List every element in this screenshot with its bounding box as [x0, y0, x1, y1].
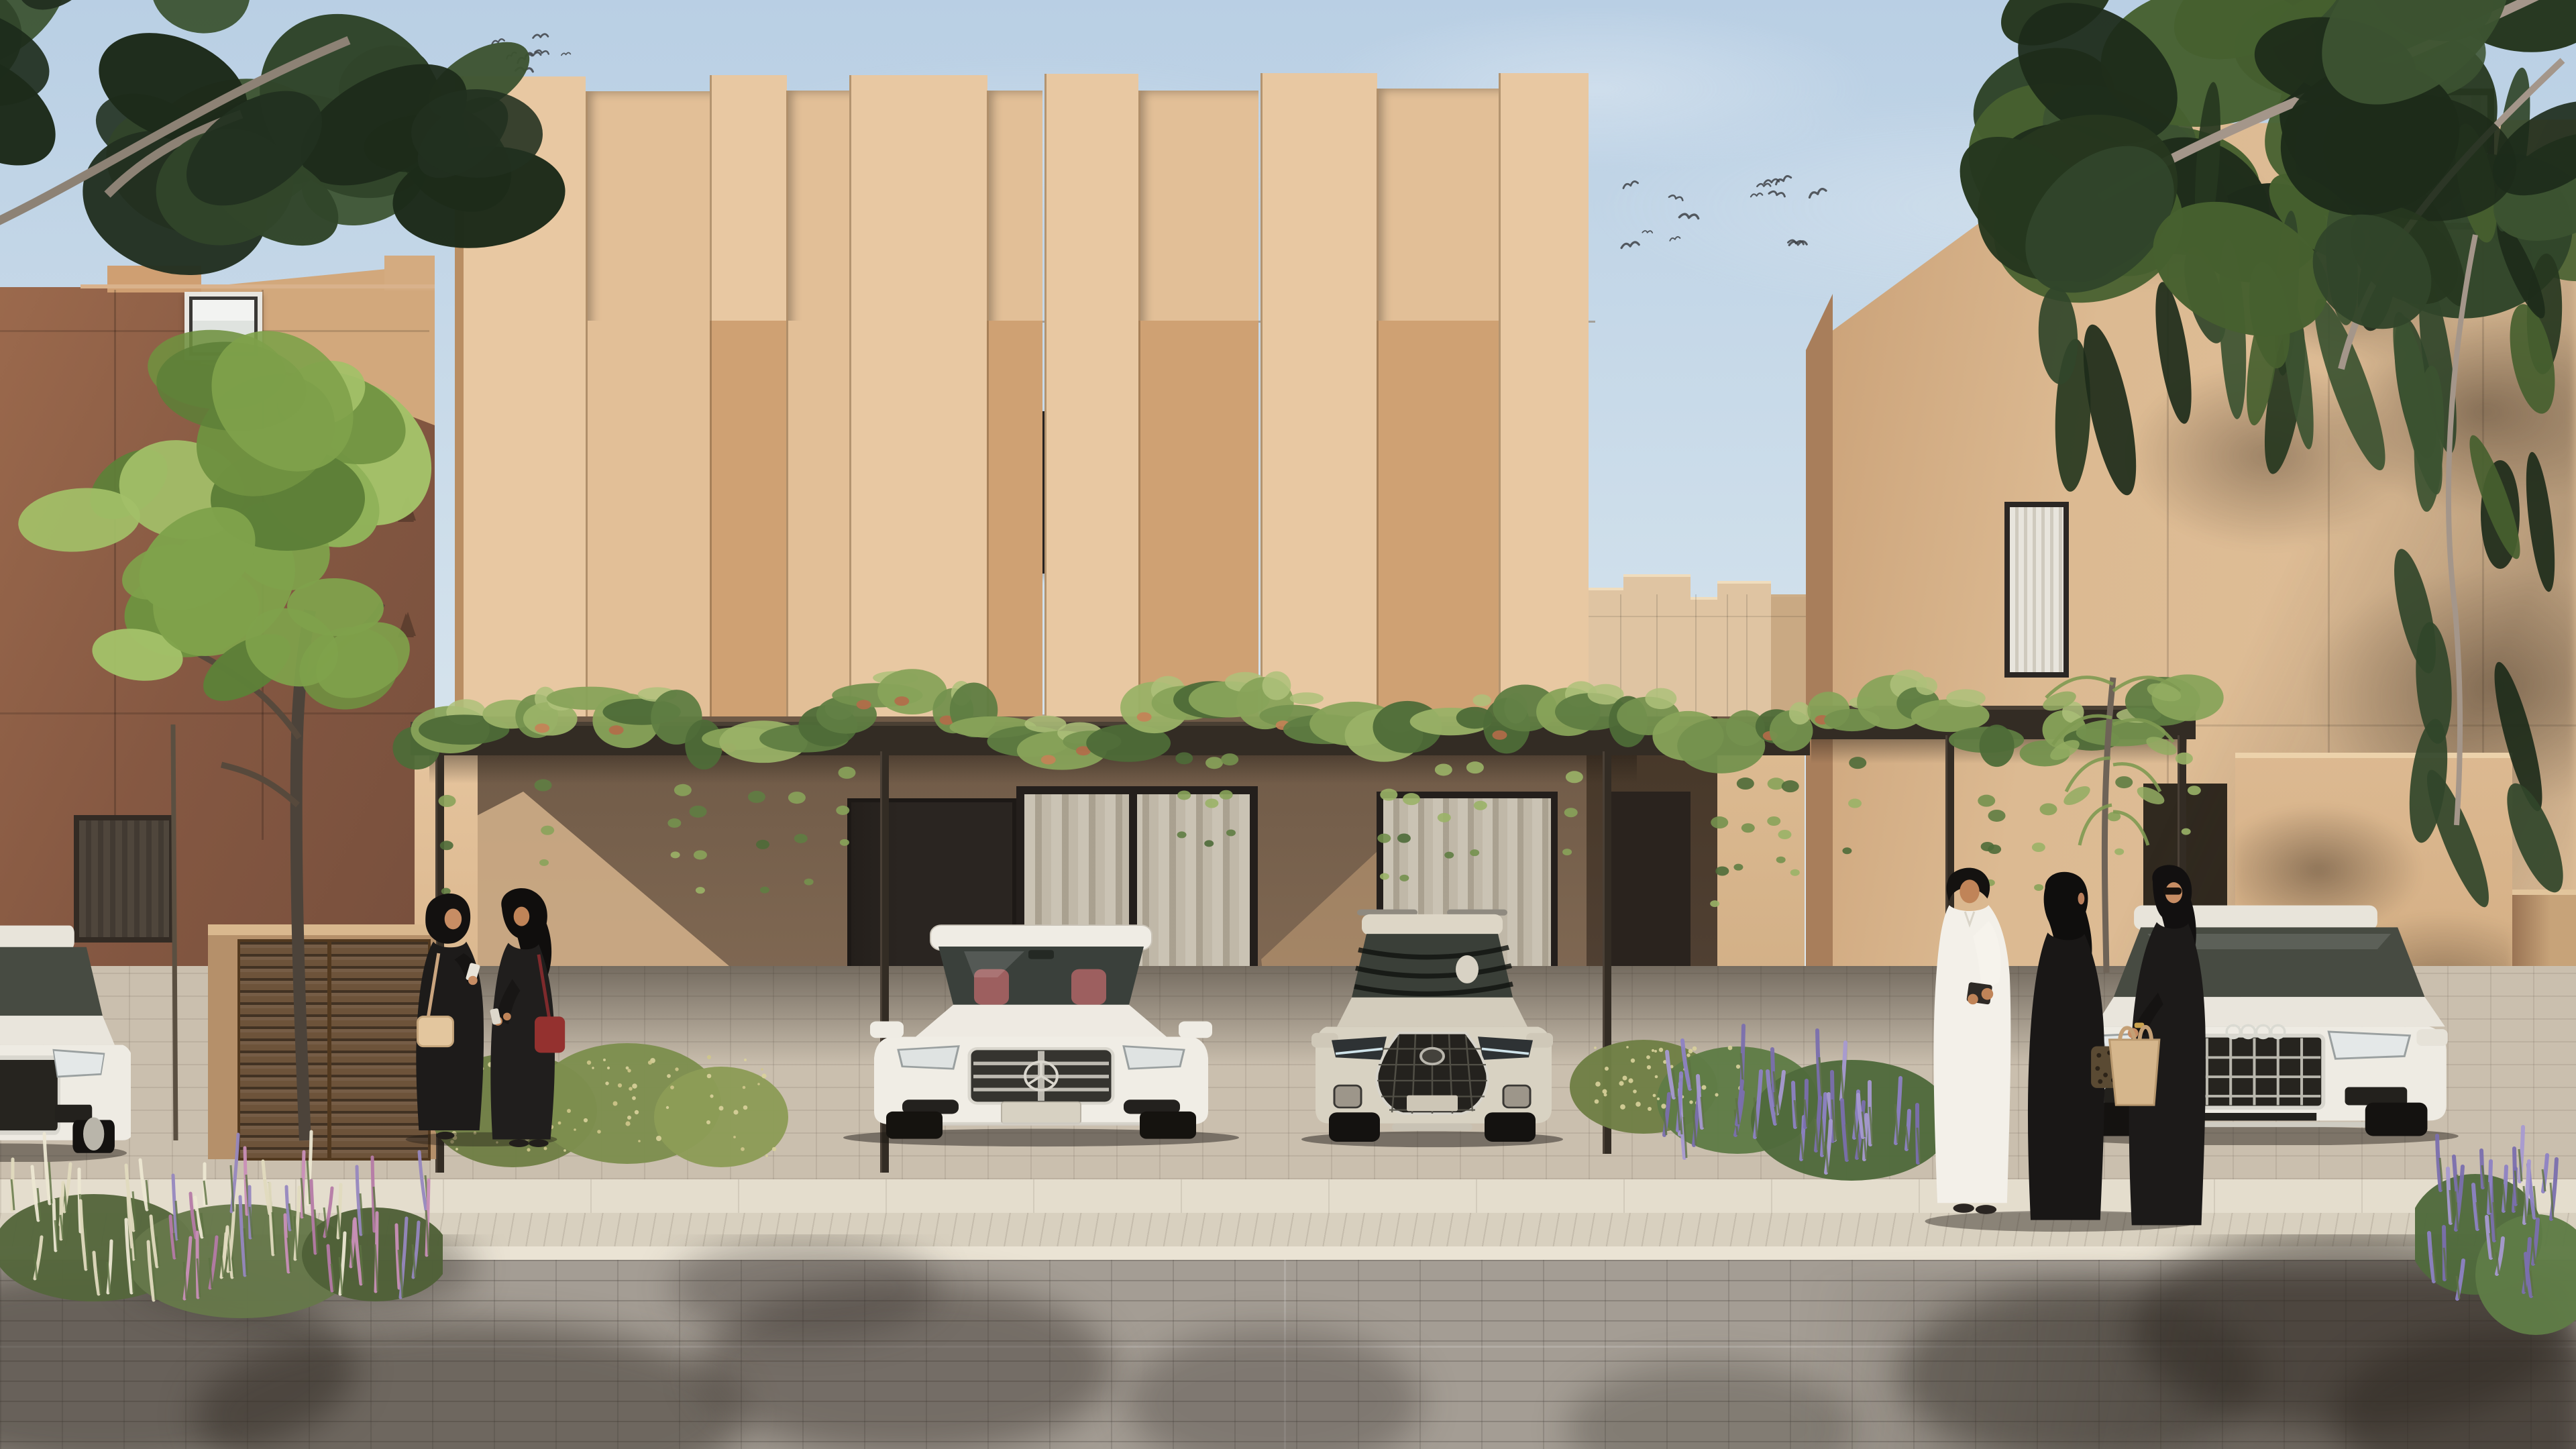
vine-hanging-strand [838, 767, 855, 779]
facade-panel-upper [1377, 89, 1499, 321]
flower-speckle [635, 1110, 639, 1114]
facade-panel-upper [849, 75, 987, 321]
vine-hanging-strand [1474, 801, 1487, 810]
car-headlight-left [898, 1046, 959, 1069]
vine-hanging-strand [1782, 780, 1799, 792]
flower-speckle [733, 1136, 736, 1138]
facade-panel-upper [786, 91, 850, 321]
vine-hanging-strand [674, 784, 692, 796]
car-wheel-right [1140, 1112, 1196, 1139]
facade-panel-upper [586, 91, 710, 321]
flower-speckle [1715, 1093, 1718, 1096]
vine-hanging-strand [696, 887, 705, 894]
leaf-mass [241, 0, 401, 13]
flower-speckle [757, 1083, 760, 1085]
tree-shadow-dapple [671, 1238, 939, 1338]
bed-left-flowering [0, 1100, 443, 1342]
vine-hanging-strand [1562, 849, 1572, 855]
vine-accent-leaf [535, 723, 549, 733]
lexus-emblem [1421, 1049, 1444, 1065]
flower-speckle [544, 1147, 547, 1150]
flower-speckle [707, 1074, 712, 1079]
vine-hanging-strand [1848, 799, 1862, 808]
car-hood [0, 1016, 115, 1045]
vine-hanging-strand [1566, 771, 1583, 783]
car-seat-right [1071, 969, 1106, 1005]
flower-speckle [632, 1083, 637, 1089]
flower-speckle [1654, 1050, 1657, 1053]
vine-hanging-strand [1444, 852, 1454, 859]
flower-speckle [761, 1073, 766, 1078]
flower-speckle [1603, 1089, 1607, 1094]
vine-clump-sunlit [1290, 692, 1324, 704]
flower-speckle [597, 1130, 601, 1134]
flower-speckle [1652, 1049, 1654, 1052]
vine-hanging-strand [836, 806, 849, 815]
flower-speckle [592, 1067, 594, 1069]
vine-hanging-strand [1842, 847, 1851, 854]
flower-speckle [1623, 1076, 1627, 1081]
vine-clump-sunlit [1789, 702, 1811, 724]
flower-speckle [607, 1067, 610, 1069]
vine-hanging-strand [1470, 849, 1479, 856]
flower-speckle [613, 1102, 618, 1106]
facade-panel-upper [1044, 74, 1138, 321]
vine-hanging-strand [1737, 777, 1754, 790]
vine-hanging-strand [1778, 830, 1791, 839]
shrub-mound [654, 1067, 788, 1167]
face [514, 907, 530, 926]
flower-speckle [1619, 1081, 1623, 1085]
flower-speckle [707, 1055, 711, 1059]
flower-speckle [574, 1128, 576, 1131]
car-headlight-right [1124, 1046, 1184, 1069]
vine-hanging-strand [541, 826, 554, 835]
flower-speckle [1661, 1104, 1666, 1108]
car-roof [0, 926, 74, 950]
vine-hanging-strand [1399, 875, 1409, 881]
vine-hanging-strand [1710, 900, 1719, 907]
car-mirror-interior [1028, 950, 1054, 959]
car-windshield [0, 947, 103, 1016]
flower-speckle [1736, 1065, 1740, 1069]
vine-hanging-strand [1220, 790, 1233, 800]
vine-hanging-strand [756, 840, 769, 849]
flower-speckle [1657, 1097, 1660, 1100]
vine-hanging-strand [1435, 763, 1452, 775]
vine-hanging-strand [1790, 869, 1800, 876]
flower-speckle [666, 1106, 669, 1109]
flower-speckle [667, 1074, 671, 1078]
flower-speckle [675, 1067, 678, 1071]
flower-speckle [638, 1140, 641, 1142]
vine-hanging-strand [1733, 864, 1743, 871]
flower-speckle [1686, 1053, 1690, 1057]
flower-speckle [1648, 1107, 1652, 1111]
flower-speckle [1633, 1089, 1637, 1093]
bird [1679, 211, 1699, 221]
face [445, 909, 462, 930]
bird [1642, 229, 1652, 234]
skid-plate [1392, 1124, 1472, 1131]
vine-hanging-strand [671, 851, 680, 858]
sandal [1976, 1205, 1996, 1214]
tree-canopy-topleft [0, 0, 577, 329]
flower-speckle [584, 1118, 588, 1122]
flower-speckle [1655, 1075, 1658, 1079]
car-mirror-right [1179, 1021, 1212, 1038]
car-hood [1337, 998, 1527, 1027]
car-hood [916, 1005, 1167, 1037]
vine-hanging-strand [1715, 866, 1729, 875]
hanging-frond [2385, 545, 2445, 676]
hanging-frond [2520, 451, 2560, 594]
flower-speckle [741, 1147, 745, 1151]
vine-hanging-strand [794, 834, 808, 843]
facade-panel-upper [710, 75, 787, 321]
flower-speckle [772, 1147, 776, 1151]
slipper [509, 1139, 529, 1147]
vine-hanging-strand [1776, 857, 1786, 863]
vine-hanging-strand [788, 792, 806, 804]
facade-panel-upper [987, 91, 1042, 321]
street-scene [0, 0, 2576, 1449]
car-mirror-left [870, 1021, 904, 1038]
shrub-mound [302, 1207, 443, 1301]
bird [1670, 237, 1680, 241]
flower-speckle [605, 1081, 608, 1085]
vine-hanging-strand [1221, 753, 1238, 765]
flower-speckle [744, 1059, 747, 1061]
flower-speckle [1653, 1094, 1656, 1097]
car-wheel-right [1485, 1112, 1536, 1142]
vine-hanging-strand [804, 879, 814, 885]
beige-crossbody-bag [417, 1016, 453, 1046]
vine-hanging-strand [439, 795, 456, 807]
vine-hanging-strand [535, 780, 552, 792]
flower-speckle [719, 1106, 724, 1111]
vine-hanging-strand [1380, 873, 1389, 879]
two-women-in-abayas [399, 882, 570, 1147]
vine-hanging-strand [1380, 789, 1397, 801]
vine-hanging-strand [667, 818, 681, 828]
bird [1623, 181, 1638, 189]
tree-shadow-dapple [1127, 1328, 1422, 1449]
flower-speckle [455, 1148, 458, 1150]
flower-speckle [1659, 1048, 1663, 1052]
flower-speckle [761, 1068, 763, 1071]
car-roof [930, 925, 1152, 950]
bird [1769, 189, 1786, 199]
hand [468, 976, 478, 985]
flower-speckle [1595, 1081, 1601, 1087]
vine-hanging-strand [1438, 813, 1451, 822]
car-intake-right [2345, 1087, 2408, 1106]
vine-accent-leaf [894, 696, 909, 706]
headrest [1456, 955, 1479, 983]
flower-speckle [1594, 1046, 1597, 1049]
flower-speckle [603, 1059, 606, 1061]
vine-accent-leaf [609, 725, 624, 735]
vine-accent-leaf [1492, 731, 1507, 740]
flower-speckle [629, 1087, 633, 1091]
vine-hanging-strand [1711, 816, 1728, 828]
vine-hanging-strand [1226, 829, 1236, 836]
flower-speckle [1605, 1067, 1609, 1071]
facade-panel-upper [1260, 73, 1377, 321]
vine-hanging-strand [1466, 761, 1484, 773]
fog-bezel-left [1334, 1085, 1361, 1108]
bird [1621, 242, 1639, 248]
car-headlight [54, 1050, 105, 1077]
vine-hanging-strand [539, 859, 549, 866]
vine-hanging-strand [1205, 798, 1218, 808]
flower-speckle [1728, 1046, 1733, 1051]
flower-speckle [1689, 1100, 1693, 1104]
vine-hanging-strand [1741, 823, 1755, 833]
flower-speckle [1626, 1046, 1629, 1049]
vine-hanging-strand [690, 806, 707, 818]
vine-hanging-strand [1377, 834, 1391, 843]
hand [503, 1013, 511, 1021]
flower-speckle [1647, 1065, 1651, 1069]
flower-speckle [656, 1136, 661, 1141]
sandal [436, 1132, 454, 1140]
vine-hanging-strand [1397, 834, 1411, 843]
flower-speckle [563, 1149, 566, 1152]
bird [1751, 193, 1762, 197]
white-sedan-mercedes [837, 916, 1246, 1147]
vine-hanging-strand [1205, 757, 1223, 769]
license-plate-blank [1407, 1095, 1458, 1112]
vine-accent-leaf [1041, 755, 1056, 765]
flower-speckle [1693, 1046, 1697, 1051]
champagne-crossover-lexus [1291, 907, 1573, 1148]
red-shoulder-bag [535, 1016, 565, 1053]
flower-speckle [618, 1083, 622, 1087]
tree-canopy-topright [1872, 0, 2576, 1067]
flower-speckle [625, 1121, 630, 1126]
flower-speckle [706, 1120, 710, 1124]
vine-hanging-strand [1767, 816, 1780, 826]
flower-speckle [1620, 1104, 1625, 1110]
flower-speckle [765, 1155, 768, 1157]
vine-clump-sunlit [1263, 672, 1291, 700]
flower-speckle [743, 1106, 748, 1110]
facade-panel-upper [1499, 73, 1589, 321]
vine-hanging-strand [748, 791, 765, 803]
fog-bezel-right [1503, 1085, 1530, 1108]
flower-speckle [1688, 1049, 1693, 1054]
vine-accent-leaf [857, 700, 871, 709]
vine-clump-sunlit [1472, 694, 1491, 706]
flower-speckle [527, 1148, 530, 1151]
flower-speckle [1646, 1055, 1650, 1059]
car-roof [1362, 914, 1503, 935]
vine-hanging-strand [1177, 790, 1191, 800]
vine-clump-sunlit [1645, 688, 1676, 710]
flower-speckle [710, 1094, 713, 1097]
vine-hanging-strand [694, 850, 707, 859]
license-plate-blank [1002, 1102, 1081, 1124]
vine-hanging-strand [1175, 752, 1193, 764]
bed-farright-lavender [2415, 1100, 2576, 1382]
bird [1669, 193, 1684, 203]
vine-hanging-strand [760, 887, 769, 894]
slipper [529, 1139, 548, 1147]
vine-hanging-strand [440, 841, 453, 850]
facade-panel-upper [1138, 91, 1258, 321]
flower-speckle [627, 1116, 631, 1120]
car-wheel-left [886, 1112, 943, 1139]
flower-speckle [743, 1086, 746, 1089]
flower-speckle [627, 1069, 631, 1072]
flower-speckle [1628, 1078, 1633, 1083]
vine-hanging-strand [1204, 840, 1214, 847]
vine-hanging-strand [1564, 808, 1578, 817]
flower-speckle [587, 1061, 591, 1065]
flower-speckle [733, 1110, 738, 1114]
vine-hanging-strand [1177, 831, 1187, 838]
flower-speckle [1604, 1093, 1607, 1097]
flower-speckle [670, 1085, 674, 1089]
sandal [1953, 1203, 1974, 1213]
vine-accent-leaf [1137, 712, 1152, 722]
flower-speckle [1702, 1085, 1707, 1090]
flower-speckle [1635, 1102, 1641, 1107]
vine-hanging-strand [840, 839, 849, 846]
flower-speckle [1631, 1059, 1635, 1063]
flower-speckle [1595, 1099, 1599, 1104]
flower-speckle [648, 1061, 652, 1065]
vine-hanging-strand [1849, 757, 1866, 769]
flower-speckle [632, 1096, 636, 1100]
sapling-trunk [173, 724, 176, 1140]
car-wheel-left [1329, 1112, 1380, 1142]
vine-hanging-strand [1403, 793, 1420, 805]
